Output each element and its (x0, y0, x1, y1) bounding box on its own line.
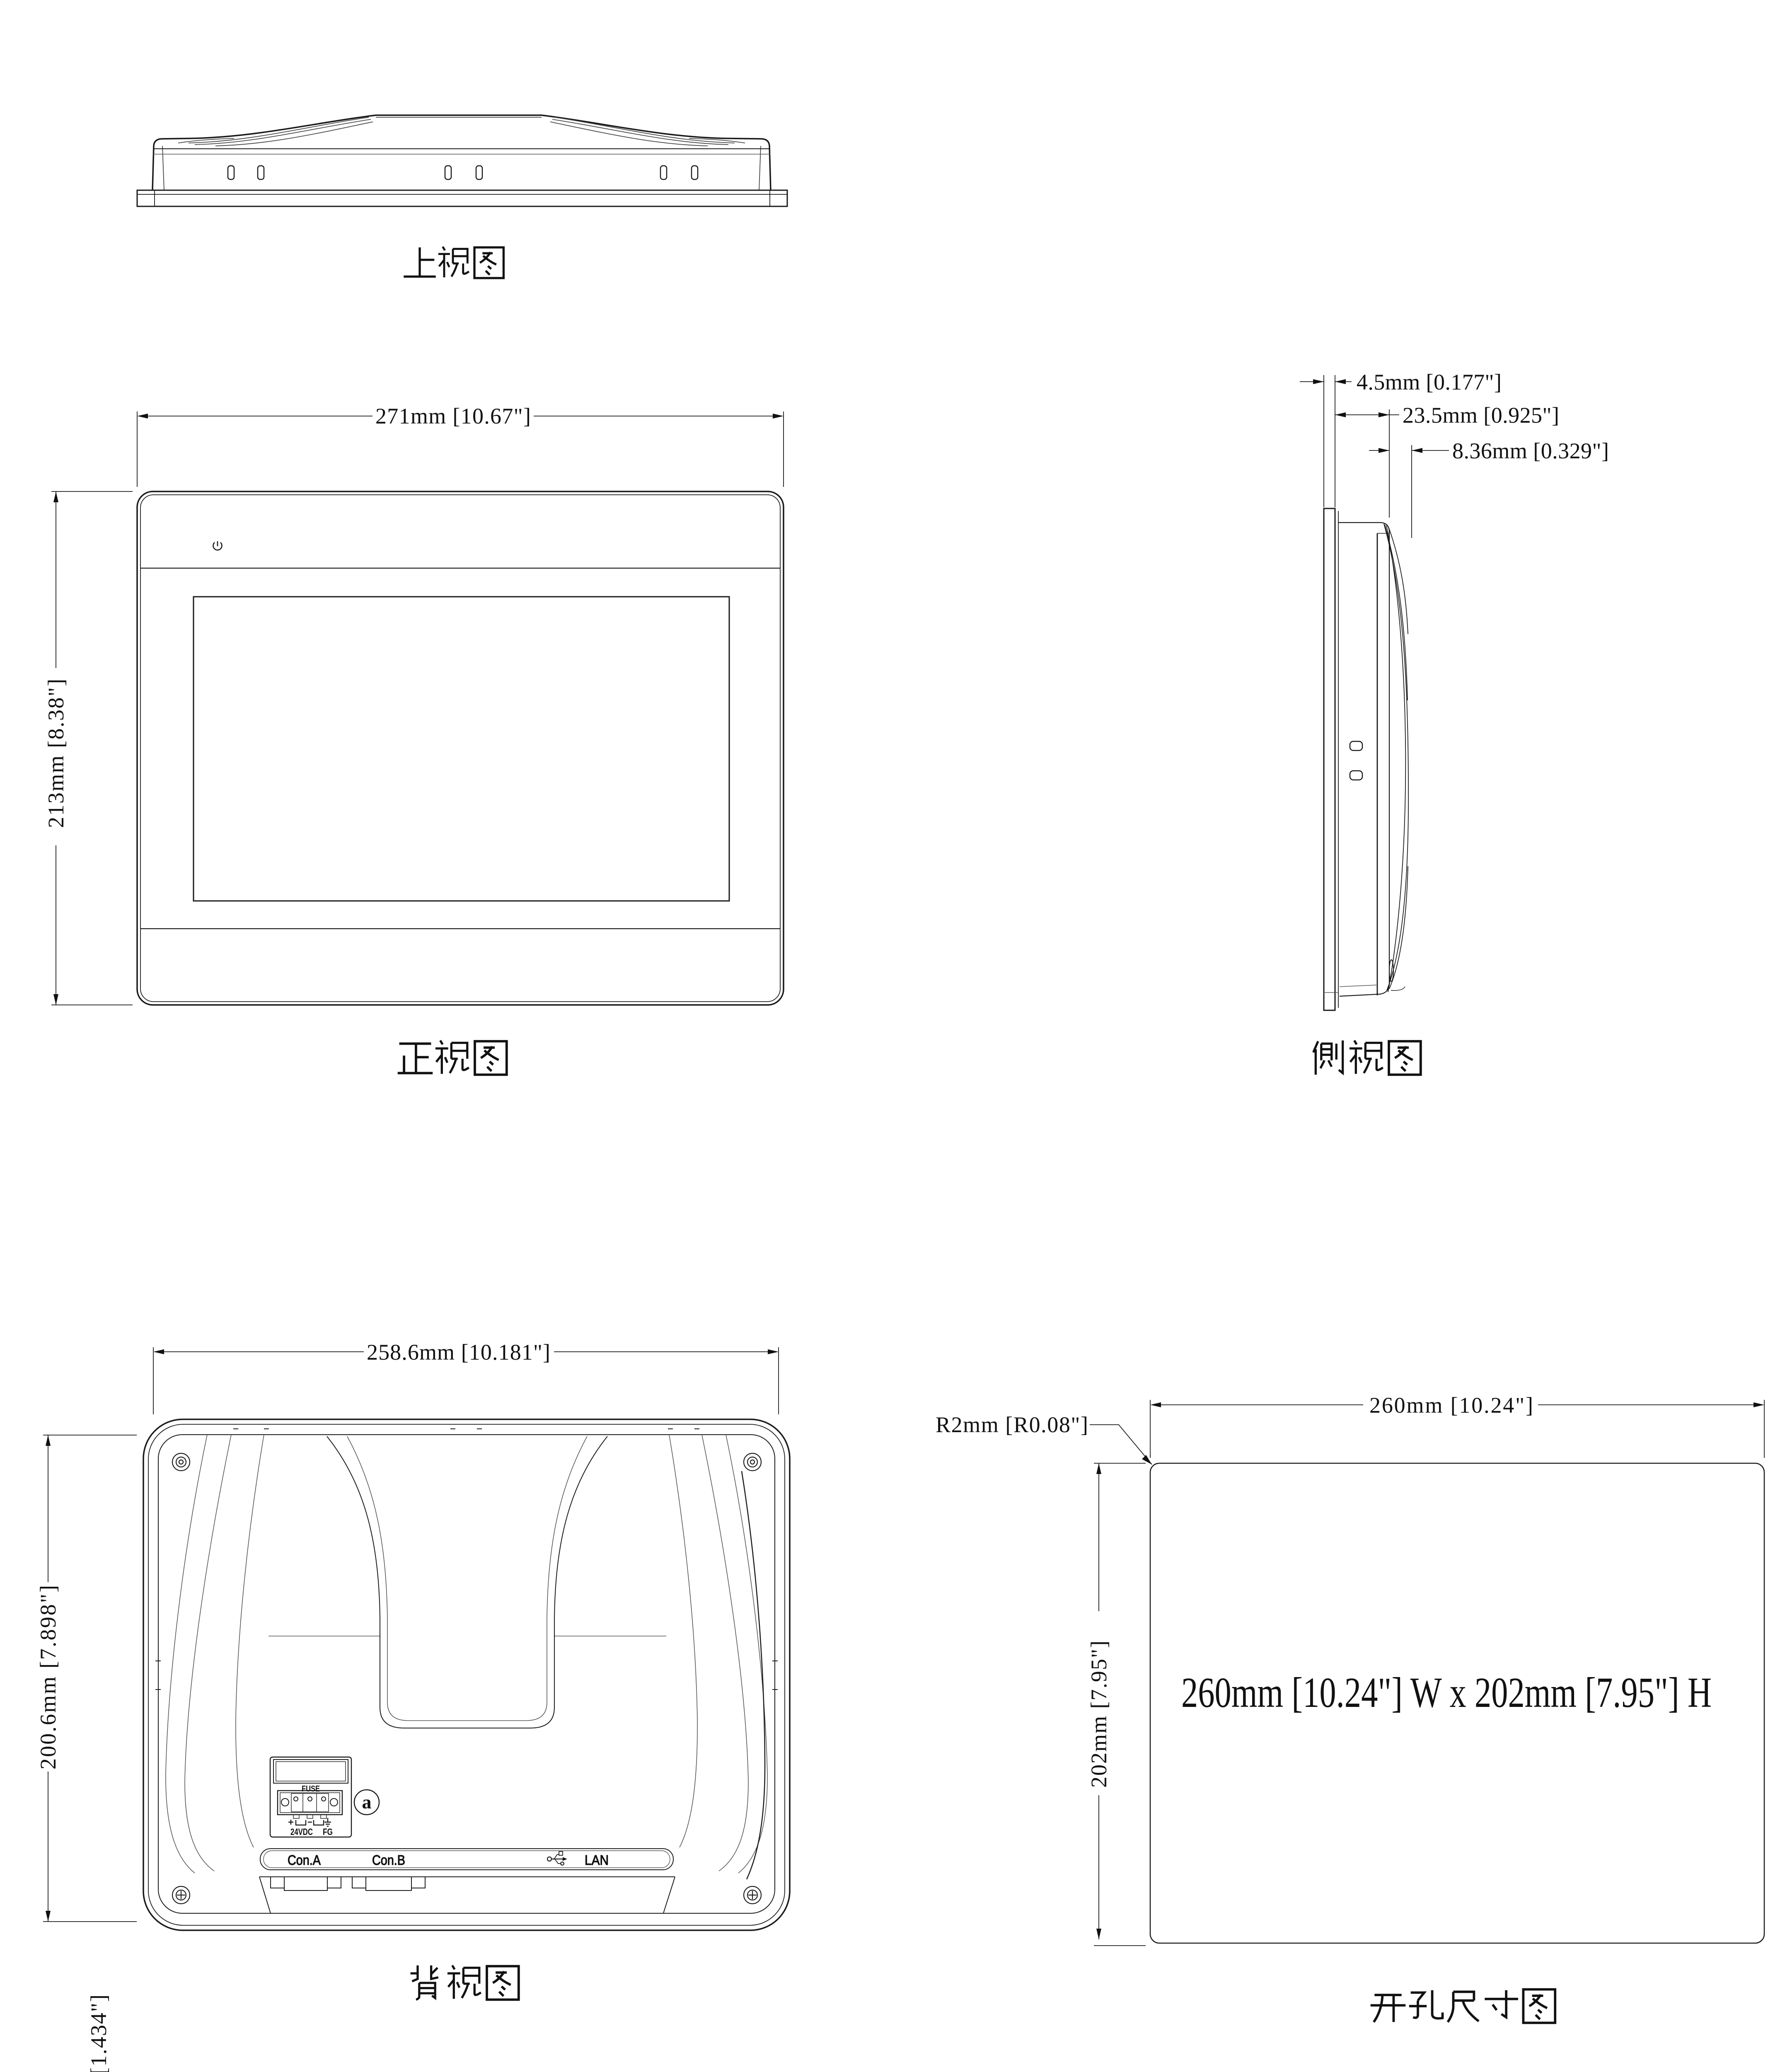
svg-text:213mm [8.38"]: 213mm [8.38"] (44, 679, 68, 828)
svg-text:FG: FG (323, 1827, 333, 1837)
svg-text:202mm [7.95"]: 202mm [7.95"] (1086, 1641, 1111, 1788)
svg-text:4.5mm [0.177"]: 4.5mm [0.177"] (1357, 370, 1502, 395)
svg-text:24VDC: 24VDC (290, 1827, 313, 1837)
svg-text:23.5mm [0.925"]: 23.5mm [0.925"] (1403, 403, 1559, 428)
svg-text:R2mm [R0.08"]: R2mm [R0.08"] (936, 1412, 1088, 1437)
svg-text:Con.B: Con.B (372, 1852, 405, 1868)
svg-text:200.6mm [7.898"]: 200.6mm [7.898"] (36, 1585, 60, 1769)
svg-text:271mm [10.67"]: 271mm [10.67"] (375, 404, 531, 428)
svg-text:Con.A: Con.A (288, 1852, 321, 1868)
svg-text:36.4mm [1.434"]: 36.4mm [1.434"] (86, 1995, 111, 2072)
svg-text:260mm [10.24"] W x 202mm [7.95: 260mm [10.24"] W x 202mm [7.95"] H (1181, 1669, 1712, 1716)
svg-text:LAN: LAN (585, 1852, 609, 1868)
svg-text:8.36mm [0.329"]: 8.36mm [0.329"] (1452, 438, 1609, 463)
svg-text:260mm [10.24"]: 260mm [10.24"] (1369, 1393, 1533, 1418)
svg-text:258.6mm [10.181"]: 258.6mm [10.181"] (367, 1340, 550, 1365)
svg-text:a: a (362, 1791, 372, 1813)
svg-text:FUSE: FUSE (302, 1784, 320, 1794)
